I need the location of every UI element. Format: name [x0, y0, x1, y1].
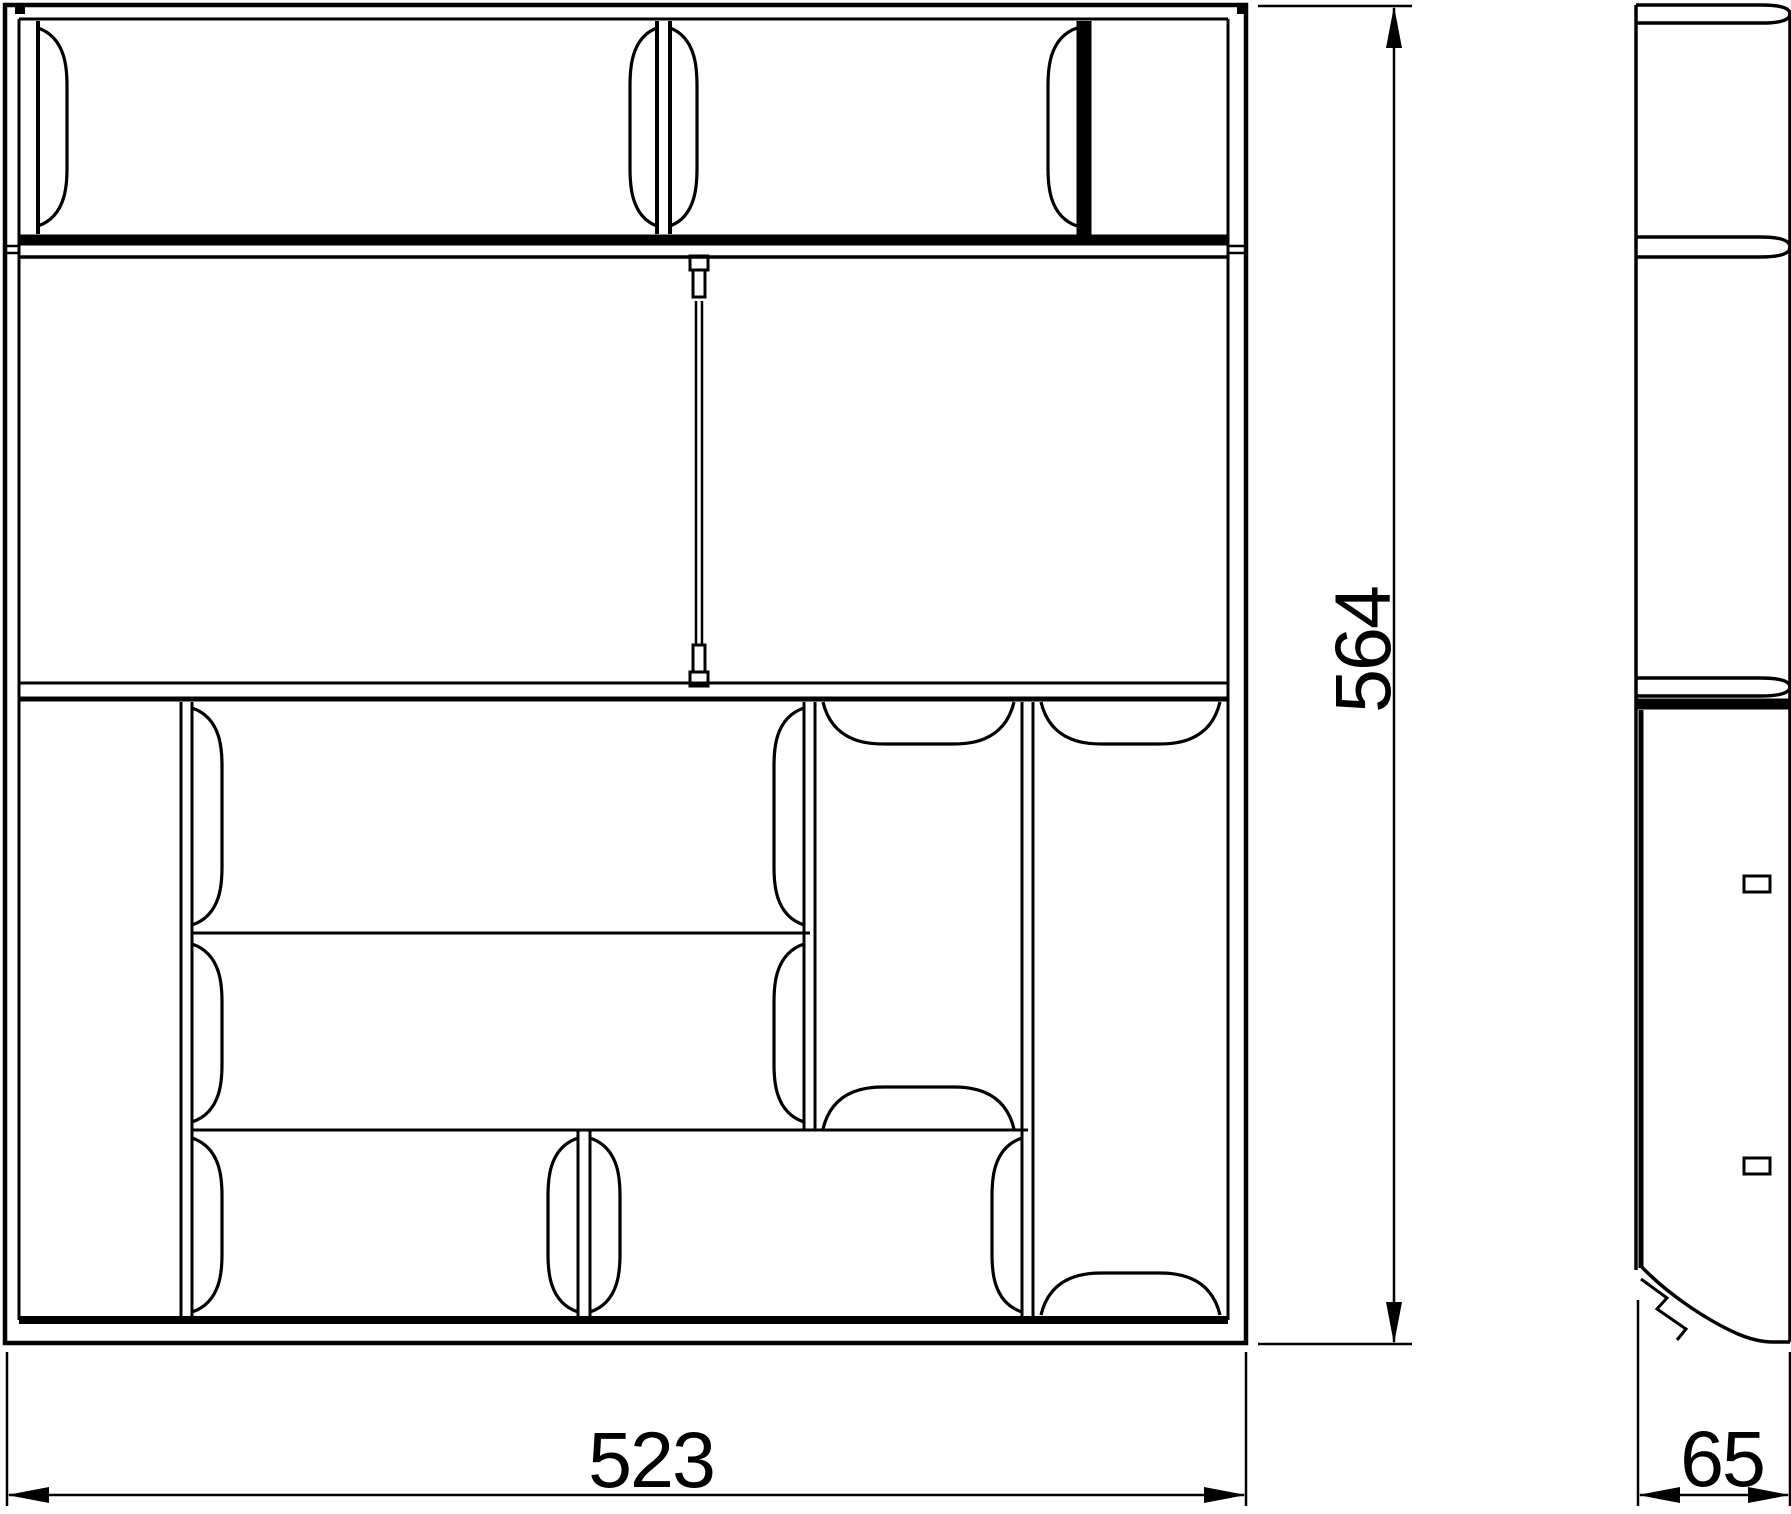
divider-clip-horizontal — [1041, 702, 1220, 744]
width-dimension-label: 523 — [588, 1415, 714, 1504]
divider-clip-vertical — [774, 708, 804, 925]
dimension-depth: 65 — [1638, 1300, 1790, 1506]
divider-clip-horizontal — [823, 702, 1014, 744]
dimension-height: 564 — [1258, 6, 1412, 1344]
divider-clip-vertical — [630, 28, 657, 226]
divider-clip-vertical — [670, 28, 697, 226]
rail-bottom-connector-body — [693, 645, 705, 672]
side-view — [1636, 5, 1790, 1342]
side-top-rail — [1636, 5, 1790, 23]
front-view — [5, 5, 1247, 1343]
dimension-width: 523 — [7, 1352, 1246, 1506]
divider-clip-horizontal — [823, 1087, 1014, 1129]
divider-clips — [38, 28, 1220, 1315]
divider-clip-vertical — [1048, 28, 1077, 226]
divider-clip-vertical — [548, 1138, 578, 1312]
width-arrow-left — [7, 1487, 49, 1503]
divider-clip-vertical — [590, 1138, 620, 1312]
front-middle-panel — [19, 256, 1228, 699]
divider-clip-vertical — [192, 708, 222, 925]
side-shelf-rail-lower — [1636, 678, 1790, 696]
side-slot-upper — [1744, 876, 1770, 892]
height-arrow-top — [1386, 6, 1402, 48]
height-arrow-bottom — [1386, 1302, 1402, 1344]
depth-arrow-left — [1638, 1487, 1680, 1503]
divider-clip-vertical — [192, 1138, 222, 1312]
technical-drawing-page: 564 523 65 — [0, 0, 1791, 1514]
drawing-canvas: 564 523 65 — [0, 0, 1791, 1514]
depth-dimension-label: 65 — [1680, 1414, 1764, 1503]
side-slot-lower — [1744, 1158, 1770, 1174]
divider-clip-vertical — [774, 944, 804, 1122]
corner-mark-left — [15, 5, 25, 14]
width-arrow-right — [1204, 1487, 1246, 1503]
divider-clip-vertical — [38, 28, 67, 226]
divider-clip-horizontal — [1041, 1273, 1220, 1315]
height-dimension-label: 564 — [1318, 587, 1407, 713]
divider-clip-vertical — [992, 1138, 1022, 1312]
divider-clip-vertical — [192, 944, 222, 1122]
front-bottom-tray — [181, 702, 1033, 1317]
corner-mark-right — [1237, 5, 1247, 14]
rail-top-connector-body — [693, 270, 705, 297]
side-shelf-rail-upper — [1636, 237, 1790, 257]
